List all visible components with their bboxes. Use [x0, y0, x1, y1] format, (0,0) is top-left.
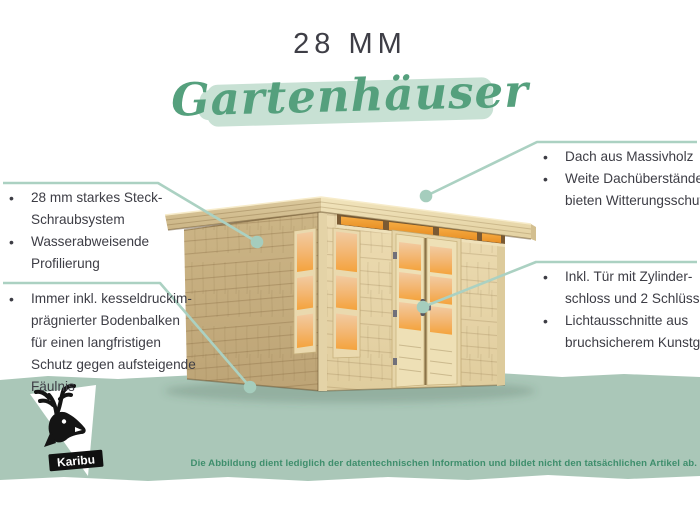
callout-top-right: • Dach aus Massivholz • Weite Dachüberst…: [543, 146, 700, 212]
corner-trim: [318, 210, 327, 391]
list-item: • Immer inkl. kesseldruckim- prägnierter…: [9, 288, 196, 398]
callout-dot-base: [244, 381, 257, 394]
bullet-icon: •: [9, 288, 31, 398]
callout-bottom-left: • Immer inkl. kesseldruckim- prägnierter…: [9, 288, 196, 398]
list-item: • Lichtausschnitte aus bruchsicherem Kun…: [543, 310, 700, 354]
infographic-page: Karibu 28 MM Gartenhäuser • 28 mm starke…: [0, 0, 700, 525]
door-hinge: [393, 358, 397, 365]
bullet-icon: •: [9, 187, 31, 231]
side-window: [294, 228, 316, 354]
list-item: • Weite Dachüberstände bieten Witterungs…: [543, 168, 700, 212]
list-item: • Inkl. Tür mit Zylinder- schloss und 2 …: [543, 266, 700, 310]
callout-dot-door: [417, 301, 430, 314]
bullet-icon: •: [543, 266, 565, 310]
front-window: [333, 228, 360, 358]
deer-eye: [62, 419, 66, 423]
bullet-icon: •: [543, 146, 565, 168]
callout-middle-right: • Inkl. Tür mit Zylinder- schloss und 2 …: [543, 266, 700, 354]
list-item: • Dach aus Massivholz: [543, 146, 700, 168]
list-item: • 28 mm starkes Steck- Schraubsystem: [9, 187, 162, 231]
shed: [165, 197, 536, 391]
size-title: 28 MM: [0, 28, 700, 61]
callout-dot-wall: [251, 236, 264, 249]
door-hinge: [393, 252, 397, 259]
bullet-icon: •: [543, 168, 565, 212]
right-trim: [497, 232, 505, 386]
door-hinge: [393, 310, 397, 317]
list-item: • Wasserabweisende Profilierung: [9, 231, 162, 275]
disclaimer-text: Die Abbildung dient lediglich der datent…: [191, 458, 697, 469]
bullet-icon: •: [543, 310, 565, 354]
callout-top-left: • 28 mm starkes Steck- Schraubsystem • W…: [9, 187, 162, 275]
callout-dot-roof: [420, 190, 433, 203]
bullet-icon: •: [9, 231, 31, 275]
